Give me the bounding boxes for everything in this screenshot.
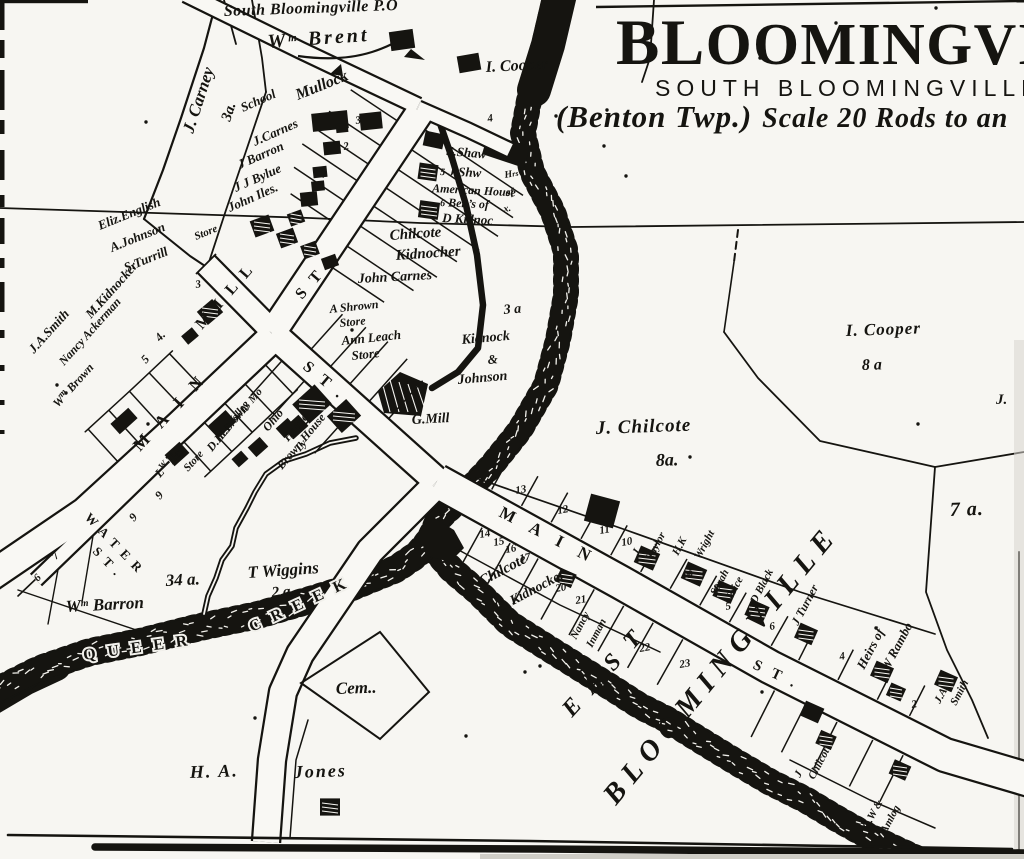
- svg-text:Jones: Jones: [292, 760, 347, 782]
- svg-text:8 a: 8 a: [862, 356, 883, 374]
- svg-text:11: 11: [598, 523, 610, 537]
- svg-text:21: 21: [573, 593, 587, 607]
- svg-text:3 a: 3 a: [502, 302, 522, 319]
- svg-text:I. Cooper: I. Cooper: [484, 56, 549, 76]
- svg-text:5 J Shw: 5 J Shw: [440, 163, 482, 180]
- svg-text:D Kidnoc: D Kidnoc: [441, 210, 494, 228]
- svg-text:&: &: [487, 351, 498, 367]
- svg-text:Store: Store: [339, 313, 367, 330]
- svg-text:I. Cooper: I. Cooper: [844, 318, 921, 340]
- svg-text:34 a.: 34 a.: [164, 569, 200, 590]
- svg-text:7 a.: 7 a.: [949, 498, 984, 521]
- svg-text:SOUTH BLOOMINGVILLE: SOUTH BLOOMINGVILLE: [655, 75, 1024, 101]
- svg-text:8a.: 8a.: [655, 449, 678, 470]
- svg-text:J.: J.: [995, 392, 1007, 408]
- svg-text:H. A.: H. A.: [188, 760, 239, 782]
- svg-text:Cem..: Cem..: [335, 678, 376, 698]
- svg-text:6 Ben’s of: 6 Ben’s of: [440, 195, 490, 212]
- svg-text:G.Mill: G.Mill: [411, 411, 450, 428]
- svg-text:J. Chilcote: J. Chilcote: [594, 415, 691, 439]
- svg-text:(Benton Twp.)Scale 20 Rods to: (Benton Twp.)Scale 20 Rods to an: [556, 99, 1008, 134]
- svg-text:Store: Store: [351, 345, 381, 363]
- svg-text:BLOOMINGVILLE: BLOOMINGVILLE: [616, 7, 1024, 79]
